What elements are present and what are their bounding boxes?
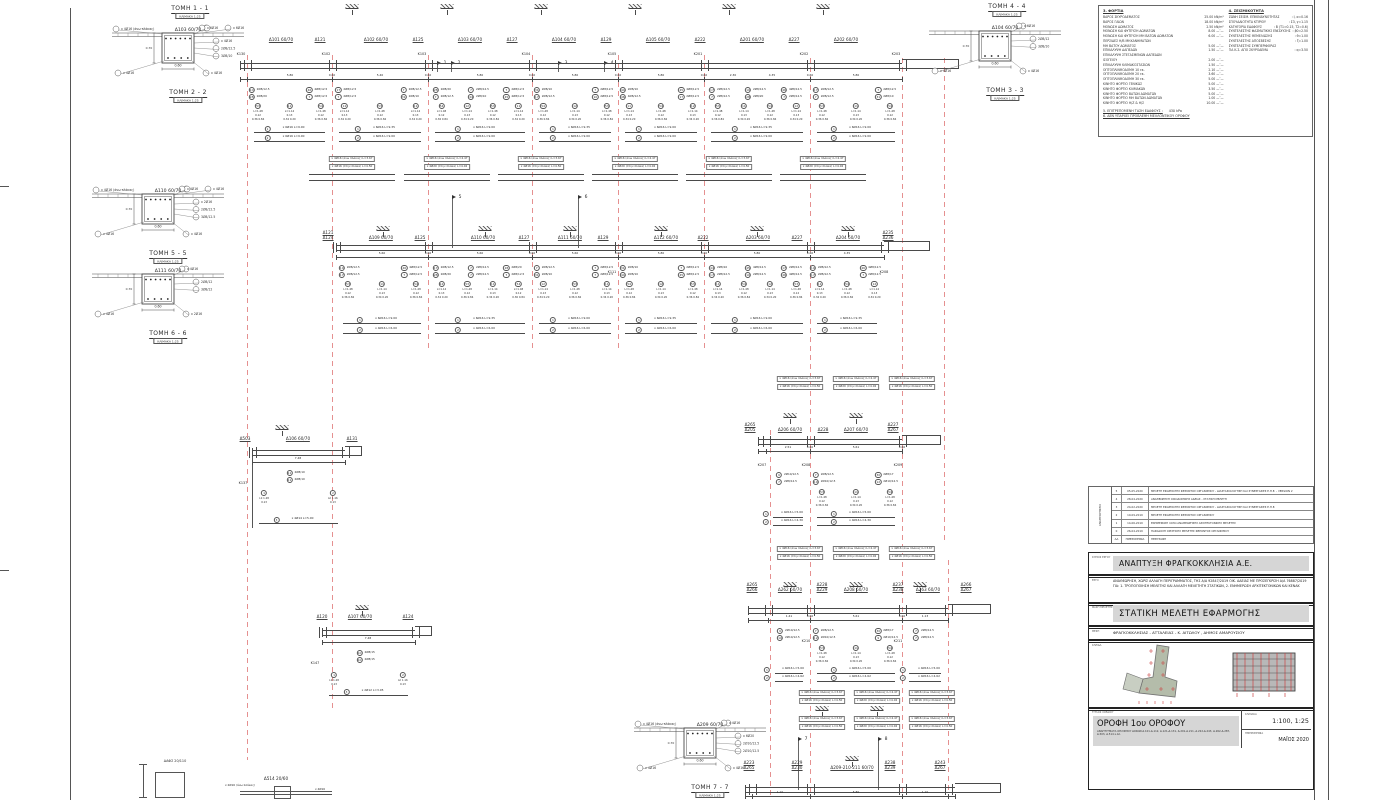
keyplan-label: ΚΛΕΙΔΑ [1092, 644, 1101, 647]
svg-text:0.70: 0.70 [963, 44, 970, 48]
dimension-text: 0.60 [529, 74, 535, 77]
beam-label: Δ121Δ124 [323, 231, 334, 241]
rebar-note: x 6Ø16 L=9.00 [375, 317, 397, 320]
misc-label: ΔΑΦΣ 20/110 [164, 760, 186, 764]
svg-text:x 4Ø16: x 4Ø16 [733, 765, 744, 770]
line [902, 77, 903, 82]
anchor-bar-label: x 4Ø16 (άνω πλάκας) L=3.67 [777, 376, 823, 382]
section-title: ΤΟΜΗ 7 - 7 [691, 785, 729, 792]
location-label: ΘΕΣΗ [1092, 630, 1099, 633]
line [240, 79, 902, 80]
line [415, 640, 416, 645]
line [615, 60, 616, 71]
svg-text:0.60: 0.60 [696, 759, 703, 763]
line [780, 180, 866, 181]
bar-schedule-text: 0.36 0.84 [712, 119, 724, 122]
rebar-mark: 54 [515, 281, 521, 287]
rebar-mark: 11 [604, 281, 610, 287]
line [773, 525, 803, 526]
line [252, 460, 253, 465]
note-6: 6. ΔΕΝ ΥΠΑΡΧΕΙ ΠΡΟΒΛΕΨΗ ΜΕΛΛΟΝΤΙΚΟΥ ΟΡΟΦ… [1103, 114, 1308, 120]
rebar-note: x 6Ø16 L=9.35 [654, 317, 676, 320]
line [990, 604, 991, 614]
dimension-text: 1.10 [922, 791, 928, 794]
beam-label: Δ202 60/70 [834, 38, 858, 43]
stirrup-callout: 2Ø8/12.5 [868, 273, 881, 276]
line [711, 132, 803, 133]
support-hatch-icon [850, 413, 863, 418]
rebar-mark: 7 [306, 94, 312, 100]
rebar-mark: 10 [339, 265, 345, 271]
bar-schedule-text: 0.36 0.84 [738, 297, 750, 300]
rebar-mark: 10 [745, 272, 751, 278]
line [888, 242, 889, 253]
anchor-bar-label: x 4Ø16 (άνω πλάκας) L=3.67 [518, 156, 564, 162]
dimension-text: 0.60 [425, 74, 431, 77]
rebar-mark: 28 [745, 94, 751, 100]
bar-schedule-text: 0.36 0.84 [655, 119, 667, 122]
rebar-mark: 12 [875, 479, 881, 485]
bar-schedule-text: 0.34 0.20 [738, 119, 750, 122]
bar-schedule-text: 0.34 0.20 [512, 119, 524, 122]
anchor-bar-label: x 4Ø16 (άνω πλάκας) L=3.67 [909, 716, 955, 722]
line [881, 242, 882, 253]
anchor-bar-label: x 4Ø16 (στην πλάκα) L=4.50 [518, 164, 564, 170]
dimension-text: 2.30 [730, 74, 736, 77]
rebar-mark: 53 [690, 281, 696, 287]
rebar-mark: 45 [678, 87, 684, 93]
line [404, 180, 490, 181]
rebar-mark: 7 [860, 272, 866, 278]
rebar-note: x 4Ø16 L=5.00 [849, 667, 871, 670]
anchor-bar-label: x 4Ø16 (στην πλάκα) L=4.50 [799, 698, 845, 704]
line [711, 323, 803, 324]
line [254, 141, 325, 142]
section-scale: ΚΛΙΜΑΚΑ 1:25 [175, 15, 204, 18]
beam-label: Δ227Δ267 [888, 423, 899, 433]
line [259, 523, 338, 524]
grid-line [704, 55, 705, 348]
line [749, 784, 750, 795]
support-hatch-icon [629, 4, 642, 9]
rebar-mark: 12 [871, 281, 877, 287]
line [899, 60, 900, 71]
rebar-note: x 4Ø16 L=6.00 [375, 327, 397, 330]
bar-schedule-text: 0.34 0.20 [813, 297, 825, 300]
stirrup-callout: 2Ø8/12.5 [314, 95, 327, 98]
rebar-mark: 17 [534, 94, 540, 100]
anchor-bar-label: x 4Ø16 (άνω πλάκας) L=3.67 [889, 546, 935, 552]
line [748, 613, 948, 614]
stirrup-callout: 2Ø8/12.5 [600, 95, 613, 98]
section-beam-label: Δ209 60/70 [697, 723, 724, 728]
dimension-text: 0.60 [701, 252, 707, 255]
beam-label: Δ112 60/70 [654, 236, 678, 241]
rebar-mark: 2 [900, 675, 906, 681]
rebar-note: x 4Ø16 L=4.62 [849, 675, 871, 678]
rebar-mark: 30 [875, 628, 881, 634]
beam-label: Δ263 60/70 [916, 588, 940, 593]
bar-schedule-text: 0.34 0.20 [687, 119, 699, 122]
column-label: K201 [694, 53, 703, 57]
rebar-mark: 31 [620, 265, 626, 271]
rebar-note: x 4Ø14 L=5.00 [292, 517, 314, 520]
stirrup-callout: 2Ø8/12.5 [600, 273, 613, 276]
line [856, 419, 857, 424]
rebar-mark: 54 [318, 103, 324, 109]
rebar-note: x 6Ø16 L=9.00 [473, 126, 495, 129]
line [763, 436, 764, 447]
svg-text:0.60: 0.60 [154, 225, 161, 229]
revision-row: 026-04-2019ΠΑΡΑΔΟΣΗ ΟΡΙΣΤΙΚΗΣ ΜΕΛΕΤΗΣ ΦΕ… [1112, 528, 1313, 536]
line [254, 132, 325, 133]
stirrup-callout: 2Ø8/12.5 [257, 88, 270, 91]
bar-schedule-text: 0.13 [261, 502, 267, 505]
rebar-mark: 12 [793, 103, 799, 109]
svg-text:2Ø8/12: 2Ø8/12 [1038, 36, 1049, 41]
loads-column: 3. ΦΟΡΤΙΑ ΒΑΡΟΣ ΣΚΥΡΟΔΕΜΑΤΟΣ25.00 kN/m³Β… [1103, 9, 1224, 106]
anchor-bar-label: x 4Ø16 (άνω πλάκας) L=4.47 [612, 156, 658, 162]
line [415, 626, 431, 627]
column-label: K208 [802, 464, 811, 468]
line [807, 60, 808, 71]
stirrup-callout: 2Ø8/10 [628, 88, 638, 91]
bar-schedule-text: 0.36 0.84 [884, 661, 896, 664]
rebar-note: x 4Ø16 L=6.00 [654, 327, 676, 330]
rebar-mark: 44 [620, 87, 626, 93]
line [435, 141, 525, 142]
stirrup-callout: 2Ø8/12.5 [686, 95, 699, 98]
beam-label: Δ125 [415, 236, 426, 241]
anchor-bar-label: x 4Ø16 (άνω πλάκας) L=4.47 [854, 690, 900, 696]
rebar-mark: 46 [620, 94, 626, 100]
anchor-bar-label: x 4Ø16 (άνω πλάκας) L=4.47 [833, 376, 879, 382]
section-title: ΤΟΜΗ 6 - 6 [149, 331, 187, 338]
drawing-title: ΟΡΟΦΗ 1ου ΟΡΟΦΟΥ [1097, 718, 1235, 728]
line [622, 60, 623, 71]
grid-line [902, 58, 903, 798]
beam-label: Δ131 [347, 437, 358, 442]
line [343, 323, 421, 324]
project-text: ΑΝΑΘΕΩΡΗΣΗ, ΧΩΡΙΣ ΑΛΛΑΓΗ ΠΕΡΙΓΡΑΜΜΑΤΟΣ, … [1113, 579, 1311, 588]
anchor-bar-label: x 4Ø20 (στην πλάκα) L=4.02 [854, 724, 900, 730]
line [817, 141, 895, 142]
line [425, 60, 426, 71]
stirrup-callout: 2Ø8/12.5 [476, 88, 489, 91]
stirrup-callout: 2Ø10/12.5 [785, 629, 800, 632]
anchor-bar-label: x 4Ø20 (στην πλάκα) L=4.02 [424, 164, 470, 170]
bar-schedule-text: 0.36 0.84 [790, 297, 802, 300]
line [708, 242, 709, 253]
anchor-bar-label: x 4Ø16 (στην πλάκα) L=4.50 [889, 384, 935, 390]
line [322, 628, 323, 637]
svg-text:2Ø8/12.5: 2Ø8/12.5 [221, 46, 235, 51]
stirrup-callout: 2Ø8/15 [365, 651, 375, 654]
stirrup-callout: 2Ø8/12.5 [821, 473, 834, 476]
line [952, 784, 953, 795]
line [770, 436, 771, 447]
line [909, 681, 941, 682]
rebar-mark: 46 [401, 265, 407, 271]
misc-label: x 4Ø16 [315, 788, 325, 791]
line [336, 250, 884, 251]
dimension-text: 1.10 [777, 791, 783, 794]
bar-schedule-text: 0.36 0.84 [764, 119, 776, 122]
divider [1089, 625, 1313, 629]
rebar-mark: 7 [678, 265, 684, 271]
beam-label: Δ228Δ229 [817, 583, 828, 593]
line [948, 794, 949, 799]
section-title: ΤΟΜΗ 1 - 1 [171, 6, 209, 13]
bar-schedule-text: 0.34 0.20 [283, 119, 295, 122]
line [349, 447, 350, 458]
line [817, 323, 877, 324]
rebar-note: x 6Ø16 L=9.00 [568, 317, 590, 320]
bar-schedule-text: 0.36 0.84 [687, 297, 699, 300]
svg-text:x 4Ø16: x 4Ø16 [187, 266, 198, 271]
dimension-text: 2.51 [785, 446, 791, 449]
svg-text:x 6Ø16: x 6Ø16 [233, 25, 244, 30]
rebar-mark: 44 [709, 265, 715, 271]
line [256, 447, 257, 458]
stirrup-callout: 2Ø8/10 [717, 266, 727, 269]
rebar-note: x 6Ø16 L=9.00 [473, 135, 495, 138]
rebar-mark: 2 [763, 519, 769, 525]
svg-text:x 4Ø16: x 4Ø16 [211, 70, 222, 75]
bar-schedule-text: 0.36 0.84 [252, 119, 264, 122]
misc-label: x 2Ø16 (άνω πλάκας) [225, 784, 255, 787]
line [884, 241, 929, 242]
bar-schedule-text: 0.36 0.84 [569, 297, 581, 300]
rebar-mark: 11 [286, 103, 292, 109]
line [249, 447, 250, 458]
svg-text:x 6Ø16: x 6Ø16 [207, 25, 218, 30]
anchor-bar-label: x 4Ø16 (στην πλάκα) L=4.50 [777, 554, 823, 560]
line [404, 174, 490, 175]
load-row: ΚΙΝΗΤΟ ΦΟΡΤΙΟ Η/Ζ & Η/Σ10.00 —″— [1103, 101, 1224, 106]
dimension-text: 0.60 [425, 252, 431, 255]
line [748, 620, 948, 621]
beam-label: Δ237Δ238 [893, 583, 904, 593]
stirrup-callout: 2Ø8/10 [628, 266, 638, 269]
line [252, 450, 345, 451]
line [336, 255, 337, 260]
beam-label: Δ228 [818, 428, 829, 433]
bar-schedule-text: 0.34 0.20 [338, 119, 350, 122]
beam-label: Δ201 60/70 [740, 38, 764, 43]
rebar-mark: 54 [413, 281, 419, 287]
section-scale: ΚΛΙΜΑΚΑ 1:25 [992, 13, 1021, 16]
svg-text:x 4Ø16 (άνω πλάκας): x 4Ø16 (άνω πλάκας) [121, 26, 154, 31]
rebar-mark: 11 [816, 281, 822, 287]
line [766, 449, 767, 454]
line [309, 174, 395, 175]
line [708, 60, 709, 71]
anchor-bar-label: x 4Ø16 (άνω πλάκας) L=3.67 [889, 376, 935, 382]
beam-label: Δ101 60/70 [269, 38, 293, 43]
rebar-mark: 17 [709, 272, 715, 278]
dimension-text: 0.60 [529, 252, 535, 255]
section-cut-number: 8 [885, 737, 888, 742]
rebar-note: x 6Ø16 L=9.00 [849, 135, 871, 138]
notes-block: 3. ΦΟΡΤΙΑ ΒΑΡΟΣ ΣΚΥΡΟΔΕΜΑΤΟΣ25.00 kN/m³Β… [1098, 5, 1313, 137]
stirrup-callout: 2Ø10/12.5 [821, 480, 836, 483]
bar-schedule-text: 0.36 0.84 [841, 297, 853, 300]
svg-text:3Ø8/10: 3Ø8/10 [221, 53, 232, 58]
line [326, 627, 327, 638]
bar-schedule-text: 0.34 0.20 [850, 505, 862, 508]
line [340, 242, 341, 253]
divider [1089, 574, 1313, 578]
stirrup-callout: 2Ø8/12.5 [600, 88, 613, 91]
line [622, 242, 623, 253]
rebar-mark: 53 [819, 645, 825, 651]
rebar-mark: 54 [844, 281, 850, 287]
beam-label: Δ208 60/70 [844, 588, 868, 593]
line [775, 681, 803, 682]
column-label: K211 [894, 640, 903, 644]
line [336, 257, 884, 258]
beam-label: Δ124 [403, 615, 414, 620]
line [1000, 783, 1001, 793]
line [322, 642, 415, 643]
stirrup-callout: 2Ø8/12.5 [821, 88, 834, 91]
column-label: K137 [239, 482, 248, 486]
revision-row: 114-06-2019ΕΝΗΜΕΡΩΣΗ ΛΟ​ΓΩ ΑΝΑΘΕΩΡΗΣΗΣ Α… [1112, 520, 1313, 528]
dimension-text: 7.48 [295, 457, 301, 460]
stirrup-callout: 2Ø8/12.5 [441, 95, 454, 98]
bar-schedule-text: 0.36 0.84 [315, 119, 327, 122]
line [336, 60, 337, 71]
section-beam-label: Δ104 60/70 [992, 26, 1019, 31]
beam-label: Δ103 60/70 [458, 38, 482, 43]
line [906, 784, 907, 795]
rebar-note: x 4Ø16 L=6.00 [568, 327, 590, 330]
rebar-note: x 6Ø16 L=9.00 [283, 126, 305, 129]
line [948, 618, 949, 623]
stirrup-callout: 2Ø8/12.5 [409, 273, 422, 276]
bar-schedule-text: 0.34 0.20 [712, 297, 724, 300]
rebar-mark: 7 [432, 94, 438, 100]
dimension-text: 4.35 [769, 74, 775, 77]
dimension-text: 5.80 [658, 74, 664, 77]
stirrup-callout: 2Ø8/12.5 [753, 273, 766, 276]
rebar-mark: 7 [709, 94, 715, 100]
misc-label: Δ514 20/60 [264, 777, 288, 782]
rebar-mark: 54 [658, 103, 664, 109]
dimension-text: 5.80 [287, 74, 293, 77]
title-block: ΚΥΡΙΟΣ ΕΡΓΟΥ ΑΝΑΠΤΥΞΗ ΦΡΑΓΚΟΚΚΛΗΣΙΑ Α.Ε.… [1088, 552, 1314, 790]
bar-schedule-text: 0.36 0.84 [816, 119, 828, 122]
bar-schedule-text: 0.34 0.20 [850, 119, 862, 122]
rebar-note: x 6Ø16 L=9.00 [849, 126, 871, 129]
bar-schedule-text: 0.36 0.84 [461, 297, 473, 300]
rebar-mark: 7 [592, 265, 598, 271]
bar-schedule-text: 0.36 0.84 [623, 297, 635, 300]
svg-text:x 6Ø16: x 6Ø16 [1024, 23, 1035, 28]
line [817, 132, 895, 133]
line [906, 605, 907, 616]
anchor-bar-label: x 4Ø16 (στην πλάκα) L=4.50 [329, 164, 375, 170]
section-cut-number: 7 [805, 737, 808, 742]
anchor-bar-label: x 4Ø16 (άνω πλάκας) L=3.67 [706, 156, 752, 162]
grid-line [618, 55, 619, 348]
stirrup-callout: 4Ø8/12.5 [789, 88, 802, 91]
stirrup-callout: 2Ø8/12.5 [476, 266, 489, 269]
stirrup-callout: 2Ø8/10 [628, 273, 638, 276]
stirrup-callout: 2Ø8/10 [542, 88, 552, 91]
beam-label: Δ127 [519, 236, 530, 241]
bar-schedule-text: 0.36 0.84 [884, 119, 896, 122]
stirrup-callout: 2Ø8/12.5 [753, 88, 766, 91]
stirrup-callout: 2Ø8/12.5 [409, 88, 422, 91]
svg-text:x 2Ø16: x 2Ø16 [191, 311, 202, 316]
grid-line [247, 55, 248, 760]
line [447, 10, 448, 15]
rebar-mark: 11 [853, 103, 859, 109]
rebar-mark: 54 [767, 103, 773, 109]
section-title: ΤΟΜΗ 2 - 2 [169, 90, 207, 97]
revision-row: 428-04-2020ΑΝΑΘΕΩΡΗΣΗ ΟΙΚΟΔΟΜΙΚΗΣ ΑΔΕΙΑΣ… [1112, 495, 1313, 503]
column-label: K102 [322, 53, 331, 57]
rebar-mark: 11 [515, 103, 521, 109]
anchor-bar-label: x 4Ø16 (άνω πλάκας) L=4.47 [854, 716, 900, 722]
line [772, 605, 773, 616]
dimension-text: 0.60 [807, 446, 813, 449]
dimension-text: 0.60 [615, 74, 621, 77]
beam-label: Δ222 [698, 236, 709, 241]
rebar-mark: 2 [400, 672, 406, 678]
rebar-mark: 53 [819, 489, 825, 495]
dimension-text: 5.80 [754, 252, 760, 255]
beam-label: Δ265Δ266 [747, 583, 758, 593]
rebar-mark: 53 [464, 281, 470, 287]
rebar-note: x 6Ø16 L=9.35 [473, 317, 495, 320]
stirrup-callout: 2Ø8/12.5 [542, 95, 555, 98]
line [333, 242, 334, 253]
rebar-mark: 46 [306, 87, 312, 93]
line [729, 10, 730, 15]
stirrup-callout: 2Ø8/12.5 [542, 266, 555, 269]
rebar-mark: 11 [853, 645, 859, 651]
line [758, 439, 902, 440]
column-label: K203 [892, 53, 901, 57]
beam-label: Δ203 60/70 [746, 236, 770, 241]
seismic-row: ΓΙΑ Κ.Σ. ΑΠΟ ΣΚΥΡΟΔΕΜΑ: q=3.50 [1229, 48, 1308, 53]
line [0, 570, 9, 571]
column-label: K207 [758, 464, 767, 468]
stirrup-callout: 2Ø8/12.5 [821, 95, 834, 98]
seismicity-title: 4. ΣΕΙΣΜΙΚΟΤΗΤΑ [1229, 9, 1308, 13]
bar-schedule-text: 0.34 0.20 [868, 297, 880, 300]
rebar-mark: 7 [468, 272, 474, 278]
rebar-mark: 12 [341, 103, 347, 109]
rebar-mark: 17 [781, 265, 787, 271]
beam-label: Δ125 [413, 38, 424, 43]
stirrup-callout: 2Ø8/12.5 [784, 480, 797, 483]
dimension-text: 5.60 [572, 252, 578, 255]
svg-text:x 4Ø16: x 4Ø16 [187, 186, 198, 191]
line [945, 605, 946, 616]
dimension-text: 1.41 [786, 615, 792, 618]
dimension-text: 5.80 [853, 791, 859, 794]
bar-schedule-text: 0.36 0.84 [374, 119, 386, 122]
line [139, 764, 147, 765]
stirrup-callout: 2Ø10/12.5 [785, 636, 800, 639]
support-hatch-icon [346, 4, 359, 9]
beam-label: Δ243Δ267 [935, 761, 946, 771]
rebar-mark: 1 [763, 511, 769, 517]
